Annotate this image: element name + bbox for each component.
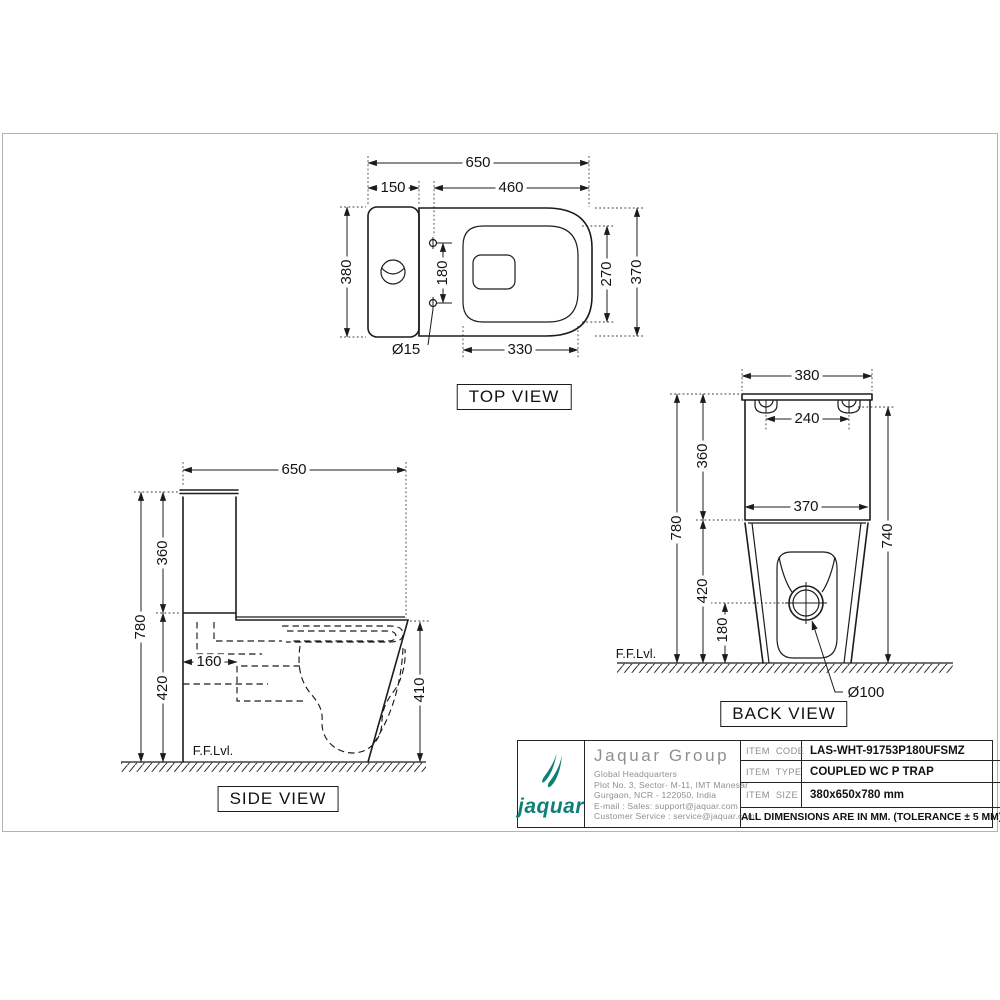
dim-side-rim-height: 410 [412, 674, 428, 705]
dim-back-tank-height: 360 [695, 440, 711, 471]
back-view-title: BACK VIEW [720, 701, 847, 727]
address-line: E-mail : Sales: support@jaquar.com [594, 801, 733, 812]
back-ffl-label: F.F.Lvl. [614, 647, 658, 661]
title-block: jaquar Jaquar Group Global Headquarters … [517, 740, 993, 828]
item-table: ITEM CODE LAS-WHT-91753P180UFSMZ ITEM TY… [741, 741, 1000, 827]
item-type-value: COUPLED WC P TRAP [802, 761, 1000, 782]
item-code-value: LAS-WHT-91753P180UFSMZ [802, 741, 1000, 760]
side-body-outline [183, 497, 408, 762]
side-ground-hatch [121, 763, 426, 772]
dim-back-tank-width: 370 [790, 499, 821, 515]
back-outlet-recess [777, 552, 837, 658]
dim-top-tank-depth: 150 [377, 180, 408, 196]
top-tank-outline [368, 207, 419, 337]
drawing-sheet: 650 150 460 380 180 270 370 330 Ø15 TOP … [0, 0, 1000, 1000]
dim-top-bowl-depth: 370 [629, 256, 645, 287]
brand-wordmark: jaquar [518, 795, 584, 819]
side-tank-lid [180, 490, 238, 494]
item-size-row: ITEM SIZE 380x650x780 mm [741, 783, 1000, 808]
item-size-value: 380x650x780 mm [802, 783, 1000, 807]
tolerance-note: ALL DIMENSIONS ARE IN MM. (TOLERANCE ± 5… [741, 808, 1000, 827]
dim-side-trap-offset: 160 [193, 654, 224, 670]
back-outlet-circle [785, 582, 827, 624]
dim-top-overall-width: 650 [462, 155, 493, 171]
side-ffl-label: F.F.Lvl. [191, 744, 235, 758]
address-line: Plot No. 3, Sector- M-11, IMT Manesar [594, 780, 733, 791]
address-line: Customer Service : service@jaquar.com [594, 811, 733, 822]
dim-top-inner-seat-depth: 270 [599, 258, 615, 289]
top-flush-recess [473, 255, 515, 289]
top-flush-button [381, 260, 405, 284]
dim-side-total-height: 780 [133, 611, 149, 642]
side-hidden-lines [183, 622, 405, 753]
address-line: Global Headquarters [594, 769, 733, 780]
dim-side-bowl-height: 420 [155, 672, 171, 703]
dim-top-seat-length: 460 [495, 180, 526, 196]
dim-back-outlet-dia: Ø100 [845, 685, 888, 701]
dim-back-bowl-height: 420 [695, 575, 711, 606]
dim-top-inner-seat-width: 330 [504, 342, 535, 358]
item-type-row: ITEM TYPE COUPLED WC P TRAP [741, 761, 1000, 783]
drawing-geometry [0, 0, 1000, 1000]
company-name: Jaquar Group [594, 746, 733, 766]
dim-back-outlet-center-height: 180 [715, 614, 731, 645]
side-view-drawing [121, 462, 429, 772]
back-tank-lid [742, 394, 872, 400]
top-seat-inner [463, 226, 578, 322]
dim-top-hinge-hole-spacing: 180 [435, 257, 451, 288]
dim-side-overall-length: 650 [278, 462, 309, 478]
top-view-title: TOP VIEW [457, 384, 572, 410]
dim-back-fixing-hole-spacing: 240 [791, 411, 822, 427]
side-view-title: SIDE VIEW [218, 786, 339, 812]
dim-back-lid-width: 380 [791, 368, 822, 384]
brand-logo-cell: jaquar [518, 741, 585, 827]
item-code-label: ITEM CODE [741, 741, 802, 760]
jaquar-swoosh-icon [532, 752, 570, 794]
item-code-row: ITEM CODE LAS-WHT-91753P180UFSMZ [741, 741, 1000, 761]
address-line: Gurgaon, NCR - 122050, India [594, 790, 733, 801]
back-ground-hatch [617, 664, 953, 673]
dim-top-overall-depth: 380 [339, 256, 355, 287]
dim-back-total-height: 780 [669, 512, 685, 543]
item-type-label: ITEM TYPE [741, 761, 802, 782]
item-size-label: ITEM SIZE [741, 783, 802, 807]
company-info-cell: Jaquar Group Global Headquarters Plot No… [585, 741, 741, 827]
dim-back-lid-underside-height: 740 [880, 520, 896, 551]
dim-top-hinge-hole-dia: Ø15 [389, 342, 423, 358]
dim-side-tank-height: 360 [155, 537, 171, 568]
